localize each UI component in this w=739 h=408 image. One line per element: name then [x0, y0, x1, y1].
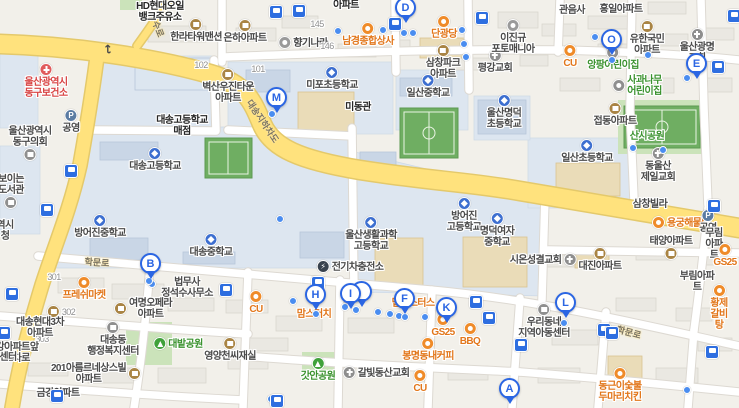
tree-icon — [153, 337, 166, 350]
map-label-text: 갈빛동산교회 — [358, 368, 410, 379]
apt-icon — [593, 247, 606, 260]
map-label-text: 단광당 — [431, 29, 457, 40]
food-icon — [713, 284, 726, 297]
poi-dot-icon[interactable] — [379, 26, 387, 34]
bus-stop-icon[interactable] — [482, 311, 496, 325]
map-pin-K[interactable]: K — [436, 297, 458, 327]
map-label[interactable]: ⚡전기차충전소 — [317, 260, 384, 274]
map-label-text: 센터 — [0, 352, 17, 363]
church-icon — [563, 253, 576, 266]
map-label[interactable]: 법무사 정석수사무소 — [161, 277, 213, 299]
road-label: 학문로 — [84, 255, 110, 270]
map-label-text: 대송동 행정복지센터 — [87, 335, 139, 357]
bus-stop-icon[interactable] — [0, 326, 11, 340]
bus-stop-icon[interactable] — [5, 287, 19, 301]
map-label-text: 홍일아파트 — [599, 4, 642, 15]
map-label[interactable]: 삼창빌라 — [633, 199, 667, 210]
map-label-text: 동근이숯불 두마리치킨 — [598, 381, 641, 403]
map-label[interactable]: BBQ — [460, 322, 480, 347]
pin-tail — [607, 47, 617, 60]
map-label-text: CU — [413, 383, 426, 394]
pin-tail — [400, 306, 410, 319]
map-label-text: 접동아파트 — [593, 116, 636, 127]
map-label[interactable]: 동근이숯불 두마리치킨 — [598, 367, 641, 403]
map-label-text: 145 — [310, 19, 323, 30]
map-label-text: 동울산 제일교회 — [641, 161, 675, 183]
map-label[interactable]: 갓안공원 — [301, 357, 335, 382]
map-label-text: 울산생활과학 고등학교 — [345, 230, 397, 252]
map-label[interactable]: 울산광역시 동구보건소 — [24, 63, 67, 99]
map-label[interactable]: 한라타워맨션 — [170, 18, 222, 43]
map-label-text: 아파트 — [333, 0, 359, 11]
map-label[interactable]: 여명오페라 아파트 — [114, 298, 172, 320]
apt-icon — [641, 20, 654, 33]
bus-stop-icon[interactable] — [705, 345, 719, 359]
poi-dot-icon[interactable] — [409, 29, 417, 37]
school-icon — [93, 214, 106, 227]
map-label-text: 302 — [62, 307, 75, 318]
map-label[interactable]: 은하아파트 — [223, 19, 266, 44]
church-icon — [343, 366, 356, 379]
school-icon — [491, 212, 504, 225]
map-label[interactable]: 접동아파트 — [593, 102, 636, 127]
apt-icon — [437, 44, 450, 57]
map-label[interactable]: 146 — [320, 41, 333, 52]
map-label-text: 미동관 — [345, 102, 371, 113]
map-label[interactable]: 시온성결교회 — [510, 253, 577, 267]
pin-tail — [505, 396, 515, 408]
map-label[interactable]: 대송동 행정복지센터 — [87, 321, 139, 357]
poi-dot-icon[interactable] — [334, 27, 342, 35]
map-label[interactable]: 홍일아파트 — [599, 4, 642, 15]
map-label-text: 146 — [320, 41, 333, 52]
school-icon — [458, 197, 471, 210]
gs-icon — [718, 243, 731, 256]
gov-icon — [5, 196, 18, 209]
poi-dot-icon[interactable] — [421, 313, 429, 321]
map-label[interactable]: 145 — [310, 19, 323, 30]
map-label[interactable]: 방어진 고등학교 — [447, 197, 481, 233]
pmark-icon: P — [64, 109, 77, 122]
map-label-text: 사과나무 어린이집 — [627, 75, 661, 97]
bus-stop-icon[interactable] — [475, 11, 489, 25]
map-label-text: 대송현대3차 아파트 — [16, 317, 64, 339]
map-label[interactable]: 봉명동내커피 — [402, 337, 454, 362]
map-label[interactable]: 남경종합상사 — [342, 22, 394, 47]
map-canvas[interactable]: HD현대오일 뱅크주유소한라타워맨션은하아파트향기나라145146101102아… — [0, 0, 739, 408]
apt-icon — [114, 302, 127, 315]
bus-stop-icon[interactable] — [219, 283, 233, 297]
school-icon — [580, 139, 593, 152]
map-label-text: 프레쉬마켓 — [62, 290, 105, 301]
map-label[interactable]: 울산광역시 동구의회 — [8, 126, 51, 162]
map-label-text: 201아름르네상스빌 아파트 — [51, 363, 126, 385]
poi-dot-icon[interactable] — [683, 386, 691, 394]
food-icon — [652, 216, 665, 229]
apt-icon — [238, 19, 251, 32]
map-pin-E[interactable]: E — [686, 53, 708, 83]
map-label[interactable]: P공영 — [62, 109, 79, 134]
map-label-text: 미포초등학교 — [306, 80, 358, 91]
map-label[interactable]: 대진아파트 — [578, 247, 621, 272]
map-label-text: 301 — [47, 272, 60, 283]
map-label[interactable]: 울산생활과학 고등학교 — [345, 216, 397, 252]
shop-grey-icon — [506, 19, 519, 32]
poi-dot-icon[interactable] — [462, 53, 470, 61]
poi-dot-icon[interactable] — [644, 51, 652, 59]
map-label-text: 은하아파트 — [223, 33, 266, 44]
uturn-icon: ↩ — [101, 44, 115, 54]
poi-dot-icon[interactable] — [629, 144, 637, 152]
map-label[interactable]: 방어진중학교 — [74, 214, 126, 239]
map-label-text: 공영 — [62, 123, 79, 134]
map-label-text: 대송고등학교 매점 — [156, 115, 208, 137]
map-label-text: 시온성결교회 — [510, 255, 562, 266]
poi-dot-icon[interactable] — [276, 215, 284, 223]
map-label-text: 영양천씨재실 — [204, 351, 256, 362]
map-label[interactable]: 명덕여자 중학교 — [480, 212, 514, 248]
pin-tail — [146, 271, 156, 284]
map-label-text: 대송고등학교 — [129, 161, 181, 172]
map-label[interactable]: GS25 — [713, 243, 736, 268]
map-label-text: 울산명덕 초등학교 — [487, 108, 521, 130]
kid-icon — [612, 79, 625, 92]
school-icon — [148, 147, 161, 160]
map-label[interactable]: 일산중학교 — [406, 74, 449, 99]
tree-icon — [312, 357, 325, 370]
map-label-text: 일산중학교 — [406, 88, 449, 99]
apt-icon — [189, 18, 202, 31]
poi-dot-icon[interactable] — [659, 146, 667, 154]
map-label[interactable]: 아파트 — [333, 0, 359, 11]
map-label[interactable]: 갈빛동산교회 — [343, 366, 410, 380]
food-icon — [463, 322, 476, 335]
pin-tail — [442, 315, 452, 328]
map-label[interactable]: 사과나무 어린이집 — [612, 75, 661, 97]
cu-icon — [564, 44, 577, 57]
map-label-text: 대송중학교 — [189, 247, 232, 258]
map-pin-I[interactable]: I — [340, 283, 362, 313]
cafe-icon — [421, 337, 434, 350]
map-label-text: 평강교회 — [478, 63, 512, 74]
shop-icon — [438, 15, 451, 28]
bus-stop-icon[interactable] — [270, 394, 284, 408]
poi-dot-icon[interactable] — [374, 308, 382, 316]
map-label-text: 전기차충전소 — [332, 262, 384, 273]
map-label-text: CU — [249, 304, 262, 315]
shop-icon — [77, 276, 90, 289]
bus-stop-icon[interactable] — [707, 199, 721, 213]
map-label[interactable]: 센터 — [0, 352, 17, 363]
map-pin-A[interactable]: A — [499, 378, 521, 408]
map-pin-D[interactable]: D — [395, 0, 417, 27]
map-label-text: 갓안공원 — [301, 371, 335, 382]
pin-tail — [561, 310, 571, 323]
map-label-text: 관음사 — [559, 5, 585, 16]
map-label-text: 명덕여자 중학교 — [480, 226, 514, 248]
gov-icon — [23, 148, 36, 161]
map-label-text: 태양아파트 — [649, 236, 692, 247]
map-pin-H[interactable]: H — [305, 284, 327, 314]
poi-dot-icon[interactable] — [460, 40, 468, 48]
map-label-text: GS25 — [713, 257, 736, 268]
map-label[interactable]: 울산명덕 초등학교 — [487, 94, 521, 130]
pin-tail — [272, 105, 282, 118]
map-label-text: 황제갈비탕 — [709, 298, 729, 331]
pin-tail — [401, 15, 411, 28]
map-label-text: 남경종합상사 — [342, 36, 394, 47]
map-label-text: 방어진 고등학교 — [447, 211, 481, 233]
map-label-text: 벽산우진타운 아파트 — [202, 82, 254, 104]
bus-stop-icon[interactable] — [50, 389, 64, 403]
apt-icon — [128, 367, 141, 380]
hosp-icon — [39, 63, 52, 76]
map-label[interactable]: 대송중학교 — [189, 233, 232, 258]
gov-icon — [106, 321, 119, 334]
bus-stop-icon[interactable] — [514, 338, 528, 352]
apt-icon — [221, 68, 234, 81]
map-label-text: 대진아파트 — [578, 261, 621, 272]
apt-icon — [223, 337, 236, 350]
map-label-text: 이진규 포토매니아 — [491, 33, 534, 55]
map-label[interactable]: 미동관 — [345, 102, 371, 113]
map-label-text: 대밭공원 — [168, 339, 202, 350]
map-label[interactable]: 301 — [47, 272, 60, 283]
map-label-text: 여명오페라 아파트 — [129, 298, 172, 320]
map-label-text: CU — [563, 58, 576, 69]
map-label-text: 울산광역시 동구보건소 — [24, 77, 67, 99]
map-pin-L[interactable]: L — [555, 292, 577, 322]
school-icon — [364, 216, 377, 229]
church-icon — [691, 28, 704, 41]
map-label[interactable]: 201아름르네상스빌 아파트 — [51, 363, 141, 385]
bus-stop-icon[interactable] — [469, 295, 483, 309]
poi-dot-icon[interactable] — [591, 33, 599, 41]
ev-icon: ⚡ — [317, 260, 330, 273]
map-label-text: BBQ — [460, 336, 480, 347]
map-pin-B[interactable]: B — [140, 253, 162, 283]
map-pin-F[interactable]: F — [394, 288, 416, 318]
map-label[interactable]: 영양천씨재실 — [204, 337, 256, 362]
poi-dot-icon[interactable] — [400, 29, 408, 37]
shop-icon — [361, 22, 374, 35]
bus-stop-icon[interactable] — [40, 203, 54, 217]
apt-icon — [664, 247, 677, 260]
map-label-text: 봉명동내커피 — [402, 351, 454, 362]
pin-tail — [311, 302, 321, 315]
cu-icon — [250, 290, 263, 303]
map-label[interactable]: 단광당 — [431, 15, 457, 40]
map-label[interactable]: 대송고등학교 매점 — [156, 115, 208, 137]
map-label-text: 방어진중학교 — [74, 228, 126, 239]
pin-tail — [692, 71, 702, 84]
map-label[interactable]: 동울산 제일교회 — [641, 147, 675, 183]
school-icon — [325, 66, 338, 79]
map-label[interactable]: 일산초등학교 — [561, 139, 613, 164]
poi-dot-icon[interactable] — [458, 26, 466, 34]
food-icon — [613, 367, 626, 380]
gov-icon — [537, 303, 550, 316]
bus-stop-icon[interactable] — [64, 164, 78, 178]
bus-stop-icon[interactable] — [605, 326, 619, 340]
map-label[interactable]: 대송고등학교 — [129, 147, 181, 172]
pin-tail — [346, 301, 356, 314]
map-label[interactable]: CU — [249, 290, 262, 315]
apt-icon — [608, 102, 621, 115]
map-label[interactable]: 이진규 포토매니아 — [491, 19, 534, 55]
bus-stop-icon[interactable] — [269, 5, 283, 19]
bus-stop-icon[interactable] — [292, 4, 306, 18]
map-label[interactable]: 관음사 — [559, 5, 585, 16]
map-label[interactable]: 벽산우진타운 아파트 — [202, 68, 254, 104]
map-label[interactable]: 태양아파트 — [649, 236, 692, 261]
poi-dot-icon[interactable] — [289, 297, 297, 305]
map-label[interactable]: 대밭공원 — [153, 337, 202, 351]
bus-stop-icon[interactable] — [711, 60, 725, 74]
school-icon — [204, 233, 217, 246]
map-label[interactable]: 프레쉬마켓 — [62, 276, 105, 301]
map-label-text: 보이는 도서관 — [0, 174, 24, 196]
map-label-text: 울산광역시 동구의회 — [8, 126, 51, 148]
map-label-text: 일산초등학교 — [561, 153, 613, 164]
map-label[interactable]: CU — [413, 369, 426, 394]
school-icon — [421, 74, 434, 87]
map-label[interactable]: 산시공원 — [630, 131, 664, 142]
map-label[interactable]: 역시 청 — [0, 220, 14, 242]
map-label[interactable]: 대송현대3차 아파트 — [16, 317, 64, 339]
map-pin-M[interactable]: M — [266, 87, 288, 117]
poi-dot-icon[interactable] — [386, 310, 394, 318]
map-label-text: 산시공원 — [630, 131, 664, 142]
map-label[interactable]: 미포초등학교 — [306, 66, 358, 91]
map-label-text: 한라타워맨션 — [170, 32, 222, 43]
map-label[interactable]: 보이는 도서관 — [0, 174, 24, 210]
cu-icon — [414, 369, 427, 382]
map-label-text: 역시 청 — [0, 220, 14, 242]
map-label-text: 법무사 정석수사무소 — [161, 277, 213, 299]
bus-stop-icon[interactable] — [727, 9, 739, 23]
shop-grey-icon — [278, 36, 291, 49]
map-label[interactable]: CU — [563, 44, 576, 69]
map-pin-O[interactable]: O — [601, 29, 623, 59]
map-label-text: 삼창빌라 — [633, 199, 667, 210]
map-label[interactable]: 황제갈비탕 — [709, 284, 729, 331]
school-icon — [498, 94, 511, 107]
